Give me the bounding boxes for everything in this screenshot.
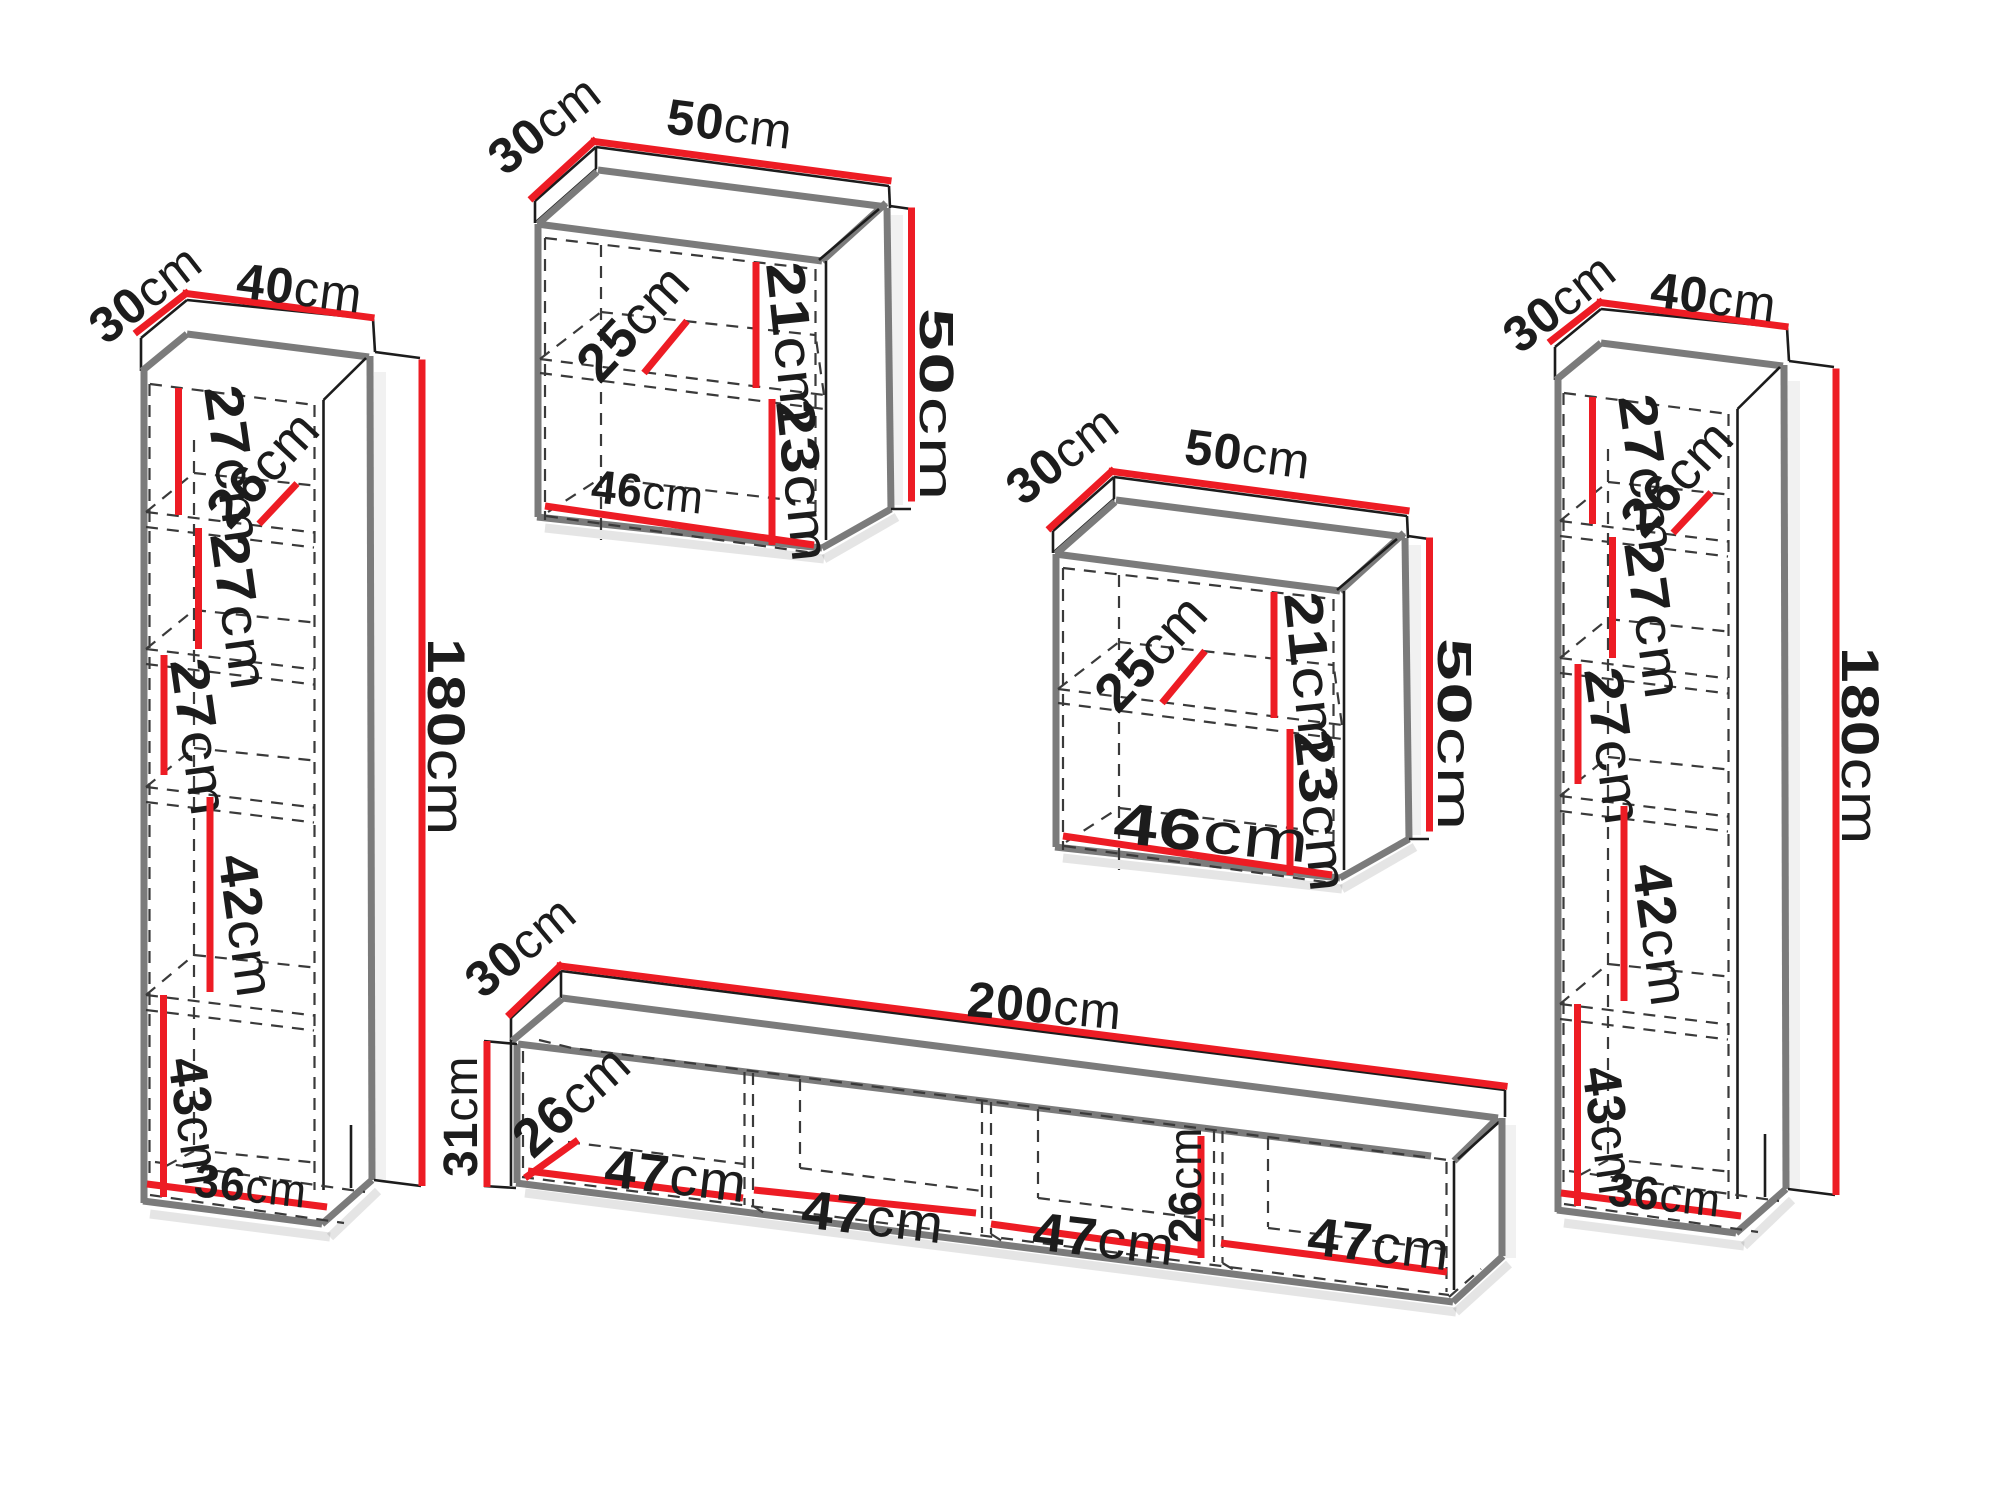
svg-text:180cm: 180cm <box>416 638 475 837</box>
svg-text:50cm: 50cm <box>910 308 964 502</box>
svg-text:31cm: 31cm <box>435 1056 488 1177</box>
